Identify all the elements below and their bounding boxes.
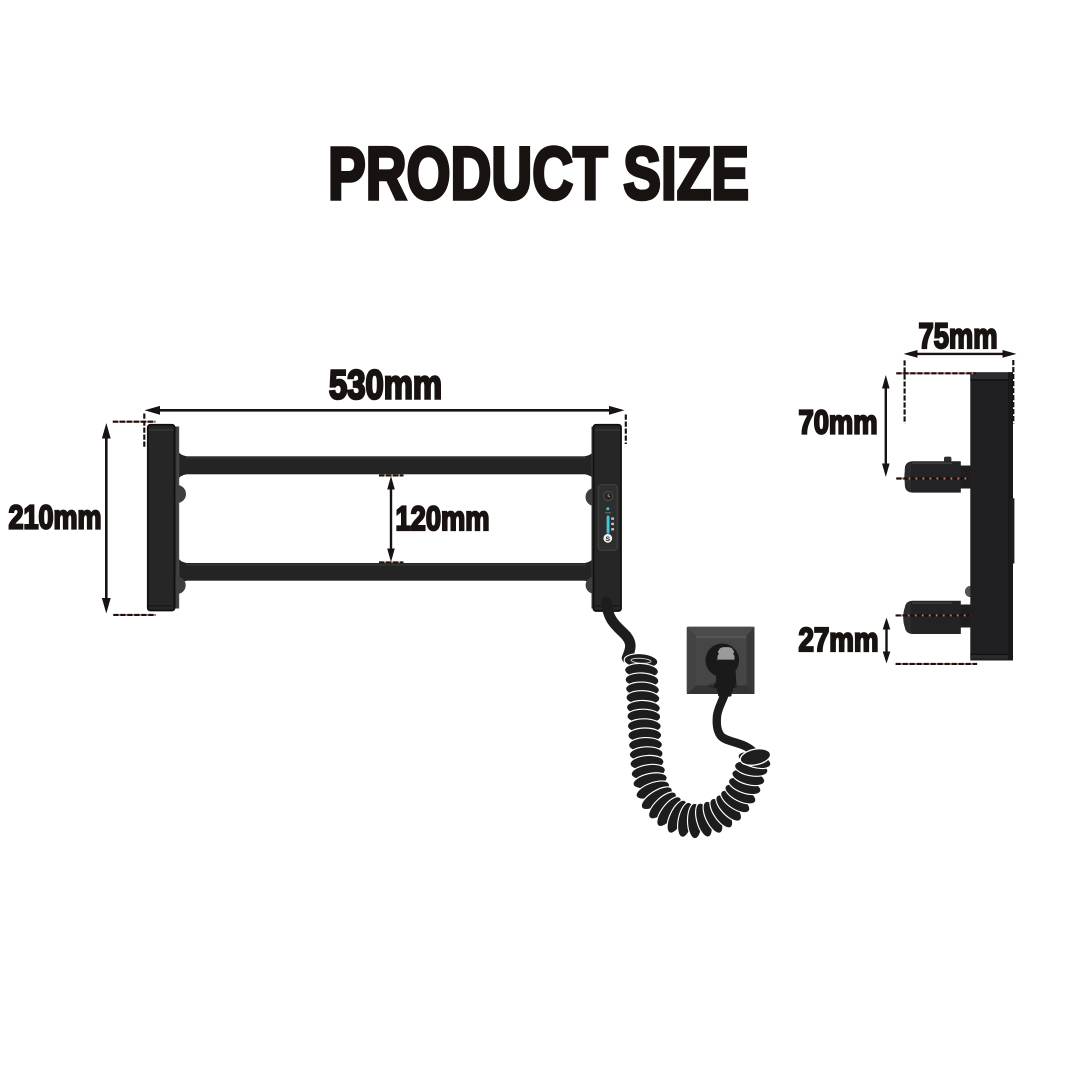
svg-text:70mm: 70mm bbox=[799, 404, 878, 441]
svg-text:PRODUCT SIZE: PRODUCT SIZE bbox=[328, 132, 749, 215]
svg-text:27mm: 27mm bbox=[799, 621, 879, 658]
svg-text:530mm: 530mm bbox=[329, 362, 442, 408]
svg-text:S: S bbox=[606, 536, 611, 543]
svg-text:210mm: 210mm bbox=[9, 499, 102, 536]
svg-text:75mm: 75mm bbox=[919, 317, 998, 356]
svg-text:120mm: 120mm bbox=[396, 500, 490, 538]
